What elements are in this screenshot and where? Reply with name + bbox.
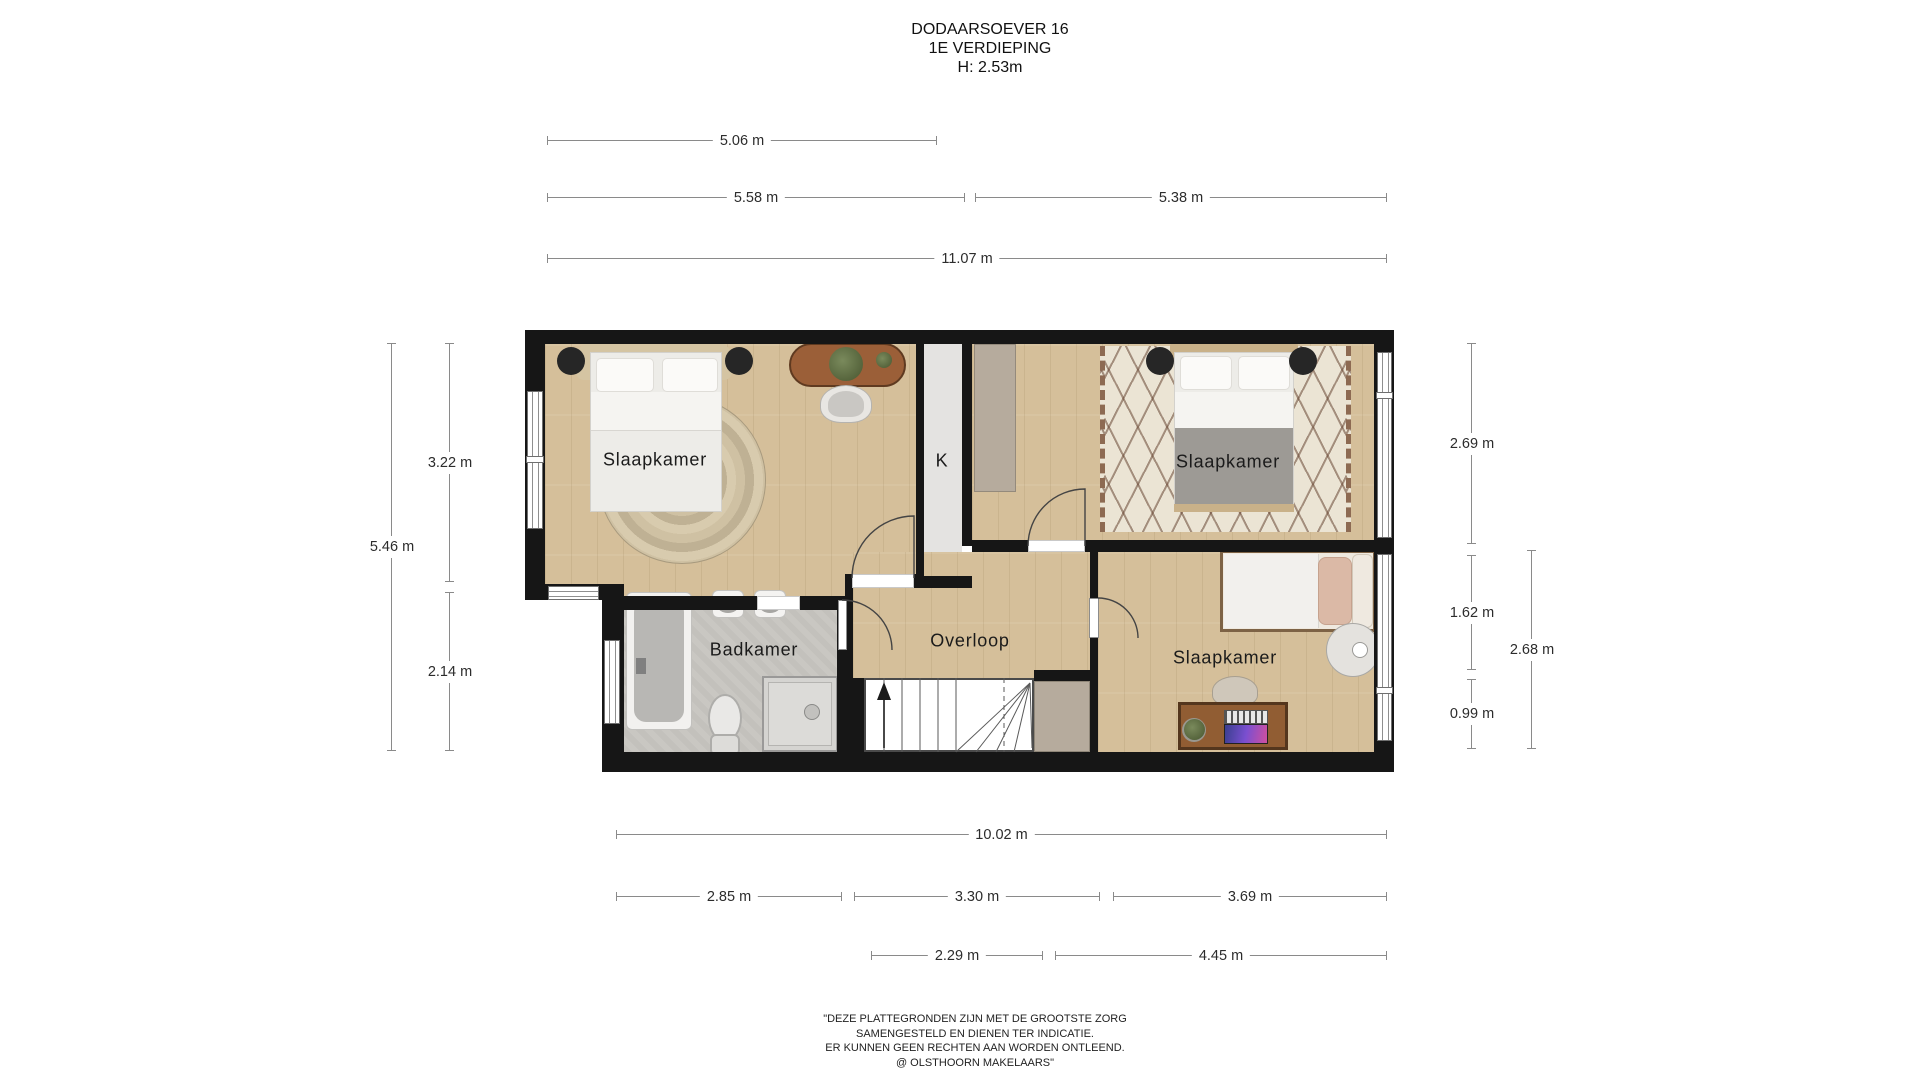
door-arc-bedroom-bottom: [1098, 598, 1138, 638]
dim-2-29: 2.29 m: [871, 955, 1043, 956]
dim-4-45: 4.45 m: [1055, 955, 1387, 956]
dim-2-68: 2.68 m: [1531, 550, 1532, 749]
dim-11-07: 11.07 m: [547, 258, 1387, 259]
door-arc-bedroom-left: [852, 516, 914, 578]
room-label-landing: Overloop: [930, 631, 1009, 652]
dim-2-14: 2.14 m: [449, 592, 450, 751]
door-arc-bathroom: [842, 600, 892, 650]
dim-5-46: 5.46 m: [391, 343, 392, 751]
dim-2-85: 2.85 m: [616, 896, 842, 897]
disclaimer-line: @ OLSTHOORN MAKELAARS": [823, 1056, 1127, 1071]
dim-2-69: 2.69 m: [1471, 343, 1472, 544]
room-label-bedroom-right: Slaapkamer: [1176, 452, 1280, 473]
room-label-closet-k: K: [936, 451, 949, 472]
dim-3-69: 3.69 m: [1113, 896, 1387, 897]
stair-treads: [884, 678, 1032, 752]
dim-5-58: 5.58 m: [547, 197, 965, 198]
floor-plan-page: DODAARSOEVER 16 1E VERDIEPING H: 2.53m: [0, 0, 1920, 1080]
dim-0-99: 0.99 m: [1471, 679, 1472, 749]
dim-1-62: 1.62 m: [1471, 555, 1472, 670]
dim-3-22: 3.22 m: [449, 343, 450, 582]
dim-5-06: 5.06 m: [547, 140, 937, 141]
dim-5-38: 5.38 m: [975, 197, 1387, 198]
plan-linework: [0, 0, 1920, 1080]
disclaimer-line: SAMENGESTELD EN DIENEN TER INDICATIE.: [823, 1027, 1127, 1042]
stair-direction-arrow: [877, 682, 891, 748]
dim-3-30: 3.30 m: [854, 896, 1100, 897]
door-arc-bedroom-right: [1028, 489, 1085, 546]
dim-10-02: 10.02 m: [616, 834, 1387, 835]
room-label-bathroom: Badkamer: [710, 640, 798, 661]
room-label-bedroom-left: Slaapkamer: [603, 450, 707, 471]
disclaimer-line: ER KUNNEN GEEN RECHTEN AAN WORDEN ONTLEE…: [823, 1041, 1127, 1056]
disclaimer-line: "DEZE PLATTEGRONDEN ZIJN MET DE GROOTSTE…: [823, 1012, 1127, 1027]
room-label-bedroom-bottom: Slaapkamer: [1173, 648, 1277, 669]
disclaimer: "DEZE PLATTEGRONDEN ZIJN MET DE GROOTSTE…: [823, 1012, 1127, 1070]
